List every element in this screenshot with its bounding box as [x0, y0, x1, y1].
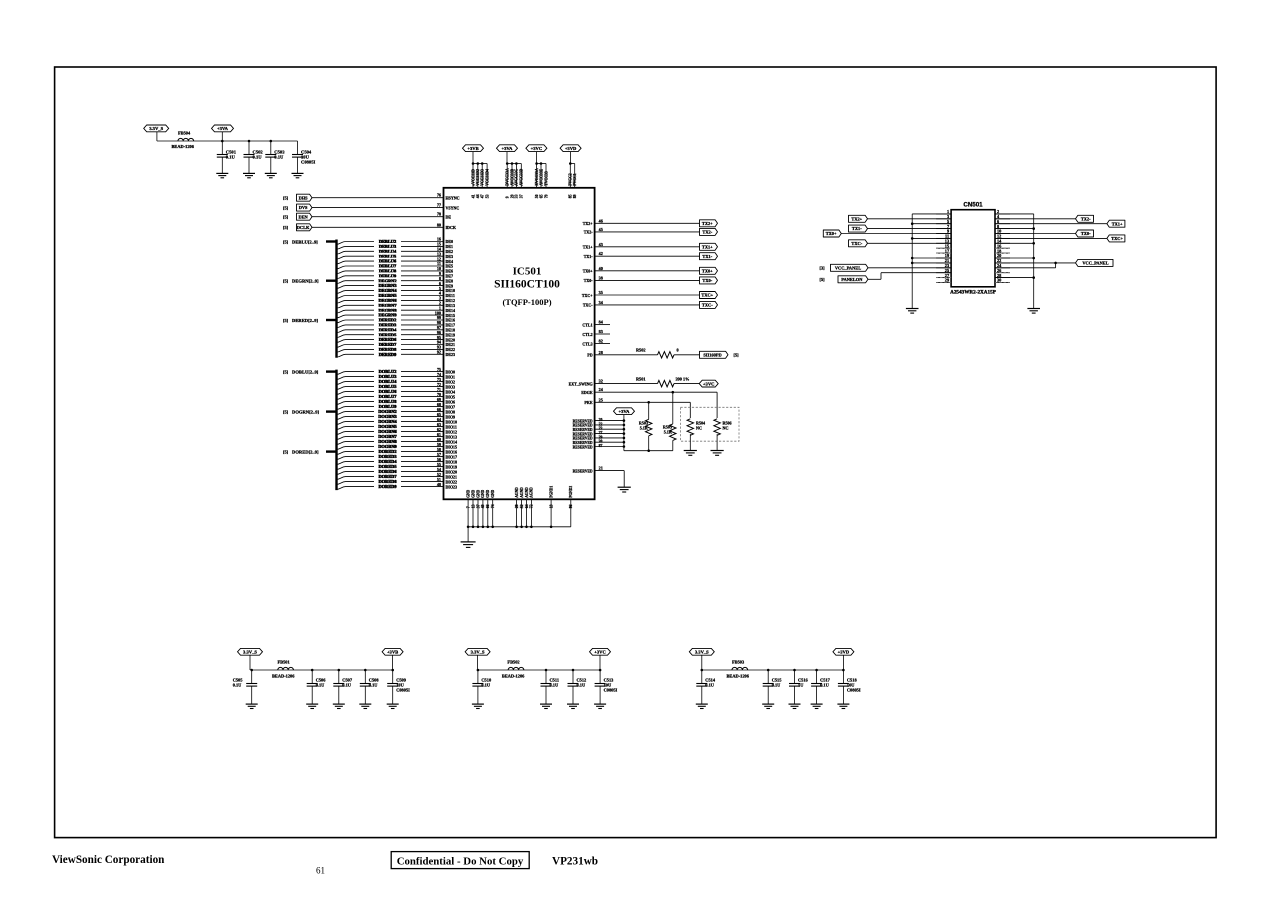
svg-text:TXC+: TXC+: [1111, 236, 1123, 241]
svg-text:RESERVED: RESERVED: [573, 428, 593, 432]
svg-text:PGND1: PGND1: [549, 486, 553, 498]
svg-text:48: 48: [437, 482, 441, 487]
svg-text:+3VC: +3VC: [703, 381, 715, 386]
svg-text:TX1+: TX1+: [702, 244, 713, 249]
svg-text:C0805I: C0805I: [847, 688, 861, 693]
svg-text:TVCC33: TVCC33: [544, 171, 548, 186]
svg-text:9: 9: [506, 196, 510, 198]
svg-text:43: 43: [599, 242, 603, 247]
svg-text:EDGE: EDGE: [581, 390, 593, 395]
svg-text:FB503: FB503: [732, 659, 745, 664]
svg-text:35: 35: [599, 290, 603, 295]
svg-text:61: 61: [316, 866, 325, 876]
svg-text:DVS: DVS: [299, 205, 308, 210]
svg-text:0.1U: 0.1U: [233, 683, 242, 688]
svg-text:BEAD-1206: BEAD-1206: [727, 674, 750, 679]
svg-text:BEAD-1206: BEAD-1206: [272, 674, 295, 679]
svg-text:DORED[2..9]: DORED[2..9]: [292, 450, 319, 455]
svg-text:FB504: FB504: [178, 131, 191, 136]
svg-text:AVCC33E: AVCC33E: [539, 169, 543, 186]
svg-text:[5]: [5]: [283, 205, 289, 210]
svg-text:[5]: [5]: [283, 410, 289, 415]
svg-text:[5]: [5]: [283, 279, 289, 284]
svg-text:65: 65: [539, 194, 543, 198]
svg-text:TX1+: TX1+: [1112, 221, 1123, 226]
svg-text:AGND: AGND: [515, 487, 519, 498]
svg-text:29: 29: [510, 194, 514, 198]
svg-text:+3VB: +3VB: [467, 146, 478, 151]
svg-text:87: 87: [599, 444, 603, 448]
svg-text:PGND2: PGND2: [569, 486, 573, 498]
svg-text:NC: NC: [696, 426, 702, 431]
svg-text:1U: 1U: [798, 683, 804, 688]
svg-text:CTL1: CTL1: [582, 322, 592, 327]
svg-text:28: 28: [599, 350, 603, 355]
svg-text:PANELON: PANELON: [841, 277, 863, 282]
svg-text:VCC33D2: VCC33D2: [476, 169, 480, 186]
svg-text:TX1-: TX1-: [852, 226, 862, 231]
svg-text:XVCC33A: XVCC33A: [535, 168, 539, 186]
svg-text:TX2-: TX2-: [702, 230, 712, 235]
svg-text:+3VA: +3VA: [619, 409, 631, 414]
svg-text:0.1U: 0.1U: [226, 155, 236, 160]
svg-text:SII160CT100: SII160CT100: [494, 278, 560, 290]
svg-text:GND: GND: [486, 489, 490, 497]
svg-text:390 1%: 390 1%: [676, 376, 690, 381]
svg-text:IC501: IC501: [513, 266, 542, 278]
svg-text:TX2+: TX2+: [851, 216, 862, 221]
svg-text:TXC+: TXC+: [582, 293, 593, 298]
svg-text:PKE: PKE: [584, 400, 593, 405]
svg-text:TX1-: TX1-: [702, 254, 712, 259]
svg-text:VCC33D3: VCC33D3: [481, 169, 485, 186]
svg-text:+3VA: +3VA: [502, 146, 514, 151]
svg-text:+3VC: +3VC: [594, 650, 606, 655]
svg-text:A2543WR2-2XA15P: A2543WR2-2XA15P: [950, 290, 997, 296]
svg-text:TX1+: TX1+: [583, 245, 594, 250]
svg-text:GND: GND: [466, 489, 470, 497]
svg-text:NC: NC: [723, 426, 729, 431]
svg-text:0.1U: 0.1U: [481, 683, 490, 688]
svg-text:CN501: CN501: [963, 202, 983, 209]
svg-text:DHS: DHS: [299, 195, 309, 200]
svg-text:TXC-: TXC-: [702, 303, 713, 308]
svg-text:DOGRN[2..9]: DOGRN[2..9]: [292, 410, 320, 415]
svg-text:[5]: [5]: [283, 450, 289, 455]
svg-text:DCLK: DCLK: [297, 225, 310, 230]
svg-text:GND: GND: [481, 489, 485, 497]
svg-text:PVCC2: PVCC2: [569, 173, 573, 186]
svg-text:DE: DE: [446, 215, 452, 220]
svg-text:0.1U: 0.1U: [274, 155, 284, 160]
svg-text:0.1U: 0.1U: [342, 683, 351, 688]
svg-text:VSYNC: VSYNC: [446, 205, 460, 210]
svg-text:CTL3: CTL3: [582, 341, 592, 346]
svg-text:3.3V_S: 3.3V_S: [471, 650, 485, 655]
svg-text:[3]: [3]: [820, 266, 826, 271]
svg-text:0.1U: 0.1U: [577, 683, 586, 688]
svg-text:DEN: DEN: [298, 214, 308, 219]
svg-text:[5]: [5]: [283, 215, 289, 220]
svg-text:+3VD: +3VD: [565, 146, 577, 151]
svg-text:+3VD: +3VD: [838, 650, 850, 655]
svg-text:SII160PD: SII160PD: [703, 352, 721, 357]
svg-text:IDCK: IDCK: [446, 225, 457, 230]
svg-text:0.1U: 0.1U: [820, 683, 829, 688]
svg-text:37: 37: [520, 194, 524, 198]
svg-text:45: 45: [599, 227, 603, 232]
svg-text:21: 21: [599, 466, 603, 471]
svg-text:46: 46: [599, 218, 603, 223]
svg-text:84: 84: [599, 320, 604, 325]
svg-text:TX2-: TX2-: [1081, 216, 1091, 221]
svg-text:BEAD-1206: BEAD-1206: [172, 144, 195, 149]
svg-text:DEBLU[2..9]: DEBLU[2..9]: [292, 240, 318, 245]
svg-text:0.1U: 0.1U: [705, 683, 714, 688]
svg-text:80: 80: [437, 222, 441, 227]
svg-text:3.3V_S: 3.3V_S: [695, 650, 709, 655]
svg-text:AGND: AGND: [525, 487, 529, 498]
svg-text:DERED[2..9]: DERED[2..9]: [292, 318, 319, 323]
svg-text:[5]: [5]: [734, 353, 740, 358]
svg-text:50: 50: [535, 194, 539, 198]
svg-text:TXC+: TXC+: [701, 293, 713, 298]
svg-text:GND: GND: [476, 489, 480, 497]
svg-text:33: 33: [515, 194, 519, 198]
svg-text:3.3V_S: 3.3V_S: [149, 126, 163, 131]
svg-text:GND: GND: [491, 489, 495, 497]
svg-text:DE23: DE23: [446, 352, 456, 357]
svg-text:30: 30: [997, 278, 1001, 283]
svg-text:29: 29: [945, 278, 949, 283]
svg-text:0.1U: 0.1U: [316, 683, 325, 688]
svg-text:TX0+: TX0+: [826, 231, 837, 236]
svg-text:77: 77: [437, 203, 441, 208]
svg-text:AGND: AGND: [520, 487, 524, 498]
svg-text:TXC-: TXC-: [583, 303, 593, 308]
svg-text:C0805I: C0805I: [396, 688, 410, 693]
svg-text:VCC_PANEL: VCC_PANEL: [1082, 261, 1108, 266]
svg-text:oVCC33D: oVCC33D: [471, 169, 475, 186]
svg-text:TX0-: TX0-: [1081, 231, 1091, 236]
svg-text:R501: R501: [636, 376, 646, 381]
svg-text:AVCC33D: AVCC33D: [520, 169, 524, 186]
svg-text:TX2+: TX2+: [702, 221, 713, 226]
svg-text:FB502: FB502: [507, 659, 519, 664]
svg-text:CTL2: CTL2: [582, 332, 592, 337]
svg-text:40: 40: [599, 266, 603, 271]
svg-text:0.1U: 0.1U: [369, 683, 378, 688]
svg-text:0.1U: 0.1U: [253, 155, 263, 160]
svg-text:AVCC33B: AVCC33B: [510, 169, 514, 186]
svg-text:47: 47: [481, 194, 485, 198]
svg-text:AVCC33C: AVCC33C: [515, 169, 519, 186]
svg-text:TX0-: TX0-: [584, 278, 594, 283]
svg-text:5.1K: 5.1K: [640, 426, 649, 431]
svg-text:C0805I: C0805I: [604, 688, 618, 693]
svg-text:DVCC33A: DVCC33A: [506, 168, 510, 186]
svg-text:Confidential - Do Not Copy: Confidential - Do Not Copy: [397, 856, 524, 868]
svg-text:R502: R502: [636, 348, 646, 353]
svg-text:TX1-: TX1-: [584, 254, 594, 259]
svg-text:(TQFP-100P): (TQFP-100P): [502, 297, 551, 307]
svg-text:DORED9: DORED9: [378, 484, 397, 489]
svg-text:DERED9: DERED9: [379, 352, 397, 357]
svg-text:85: 85: [569, 194, 573, 198]
svg-text:PD: PD: [587, 353, 592, 358]
svg-text:AGND: AGND: [530, 487, 534, 498]
svg-text:TXC-: TXC-: [851, 241, 862, 246]
svg-text:TX0-: TX0-: [702, 278, 712, 283]
svg-text:+3VC: +3VC: [531, 146, 543, 151]
svg-text:76: 76: [437, 193, 441, 198]
svg-text:[5]: [5]: [283, 225, 289, 230]
svg-text:VCC_PANEL: VCC_PANEL: [835, 265, 861, 270]
svg-text:34: 34: [599, 300, 604, 305]
svg-text:VP231wb: VP231wb: [552, 856, 598, 868]
svg-text:DIO23: DIO23: [446, 484, 458, 489]
svg-text:0.1U: 0.1U: [772, 683, 781, 688]
svg-text:5.1K: 5.1K: [664, 430, 673, 435]
svg-text:DEGRN[2..9]: DEGRN[2..9]: [292, 279, 319, 284]
svg-text:BEAD-1206: BEAD-1206: [502, 674, 525, 679]
svg-text:EXT_SWING: EXT_SWING: [569, 381, 593, 386]
svg-text:VCC33D4: VCC33D4: [485, 169, 489, 186]
svg-text:HSYNC: HSYNC: [446, 196, 460, 201]
svg-text:0.1U: 0.1U: [550, 683, 559, 688]
svg-text:+3VA: +3VA: [217, 126, 229, 131]
svg-text:PVCC1: PVCC1: [573, 173, 577, 186]
svg-text:0: 0: [677, 348, 679, 353]
svg-text:GND: GND: [471, 489, 475, 497]
svg-text:53: 53: [485, 194, 489, 198]
svg-text:[5]: [5]: [283, 370, 289, 375]
svg-text:32: 32: [599, 379, 603, 384]
svg-text:TX2-: TX2-: [584, 230, 594, 235]
svg-text:[5]: [5]: [283, 318, 289, 323]
svg-text:42: 42: [599, 251, 603, 256]
svg-text:[5]: [5]: [283, 196, 289, 201]
svg-text:FB501: FB501: [278, 659, 290, 664]
svg-text:41: 41: [471, 194, 475, 198]
svg-text:79: 79: [544, 194, 548, 198]
svg-text:DOBLU[2..9]: DOBLU[2..9]: [292, 370, 319, 375]
svg-text:C0805I: C0805I: [301, 160, 316, 165]
svg-text:[5]: [5]: [820, 277, 826, 282]
svg-text:78: 78: [437, 212, 441, 217]
svg-text:38: 38: [599, 275, 603, 280]
svg-text:82: 82: [599, 339, 603, 344]
svg-text:+3VB: +3VB: [387, 650, 398, 655]
svg-text:23: 23: [599, 427, 603, 431]
svg-text:RESERVED: RESERVED: [573, 469, 593, 473]
svg-text:92: 92: [437, 350, 441, 355]
svg-text:TX0+: TX0+: [702, 268, 713, 273]
svg-text:[5]: [5]: [283, 240, 289, 245]
svg-text:83: 83: [599, 329, 603, 334]
svg-text:89: 89: [573, 194, 577, 198]
svg-text:TX2+: TX2+: [583, 221, 594, 226]
svg-text:3.3V_S: 3.3V_S: [243, 650, 257, 655]
svg-text:RESERVED: RESERVED: [573, 445, 593, 449]
svg-text:ViewSonic Corporation: ViewSonic Corporation: [52, 854, 165, 866]
svg-text:25: 25: [599, 397, 603, 402]
svg-text:44: 44: [476, 194, 480, 198]
svg-text:TX0+: TX0+: [583, 269, 594, 274]
svg-text:24: 24: [599, 387, 604, 392]
